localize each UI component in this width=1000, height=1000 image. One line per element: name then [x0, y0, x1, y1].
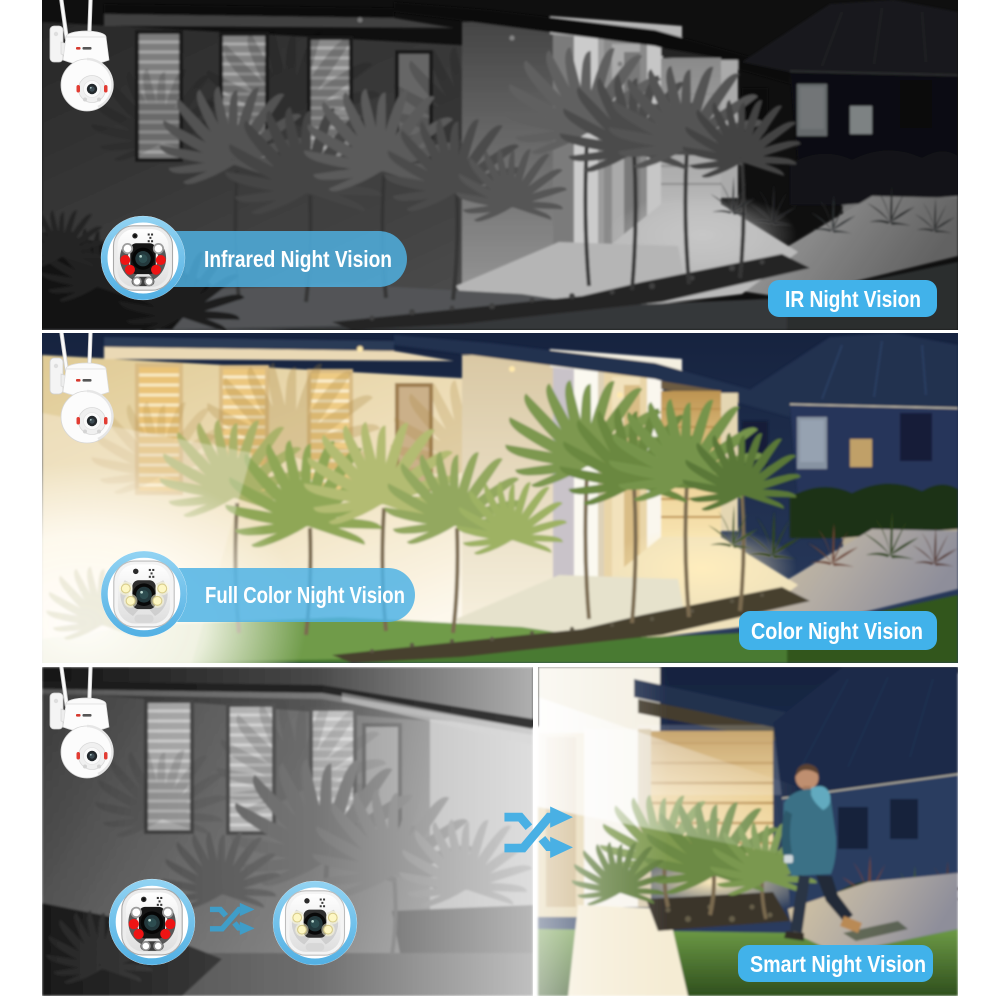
- svg-text:Smart Night Vision: Smart Night Vision: [750, 951, 926, 977]
- svg-text:Infrared Night Vision: Infrared Night Vision: [204, 246, 392, 272]
- svg-text:Full Color Night Vision: Full Color Night Vision: [205, 582, 405, 608]
- svg-text:Color Night Vision: Color Night Vision: [751, 618, 923, 644]
- svg-text:IR Night Vision: IR Night Vision: [785, 286, 921, 312]
